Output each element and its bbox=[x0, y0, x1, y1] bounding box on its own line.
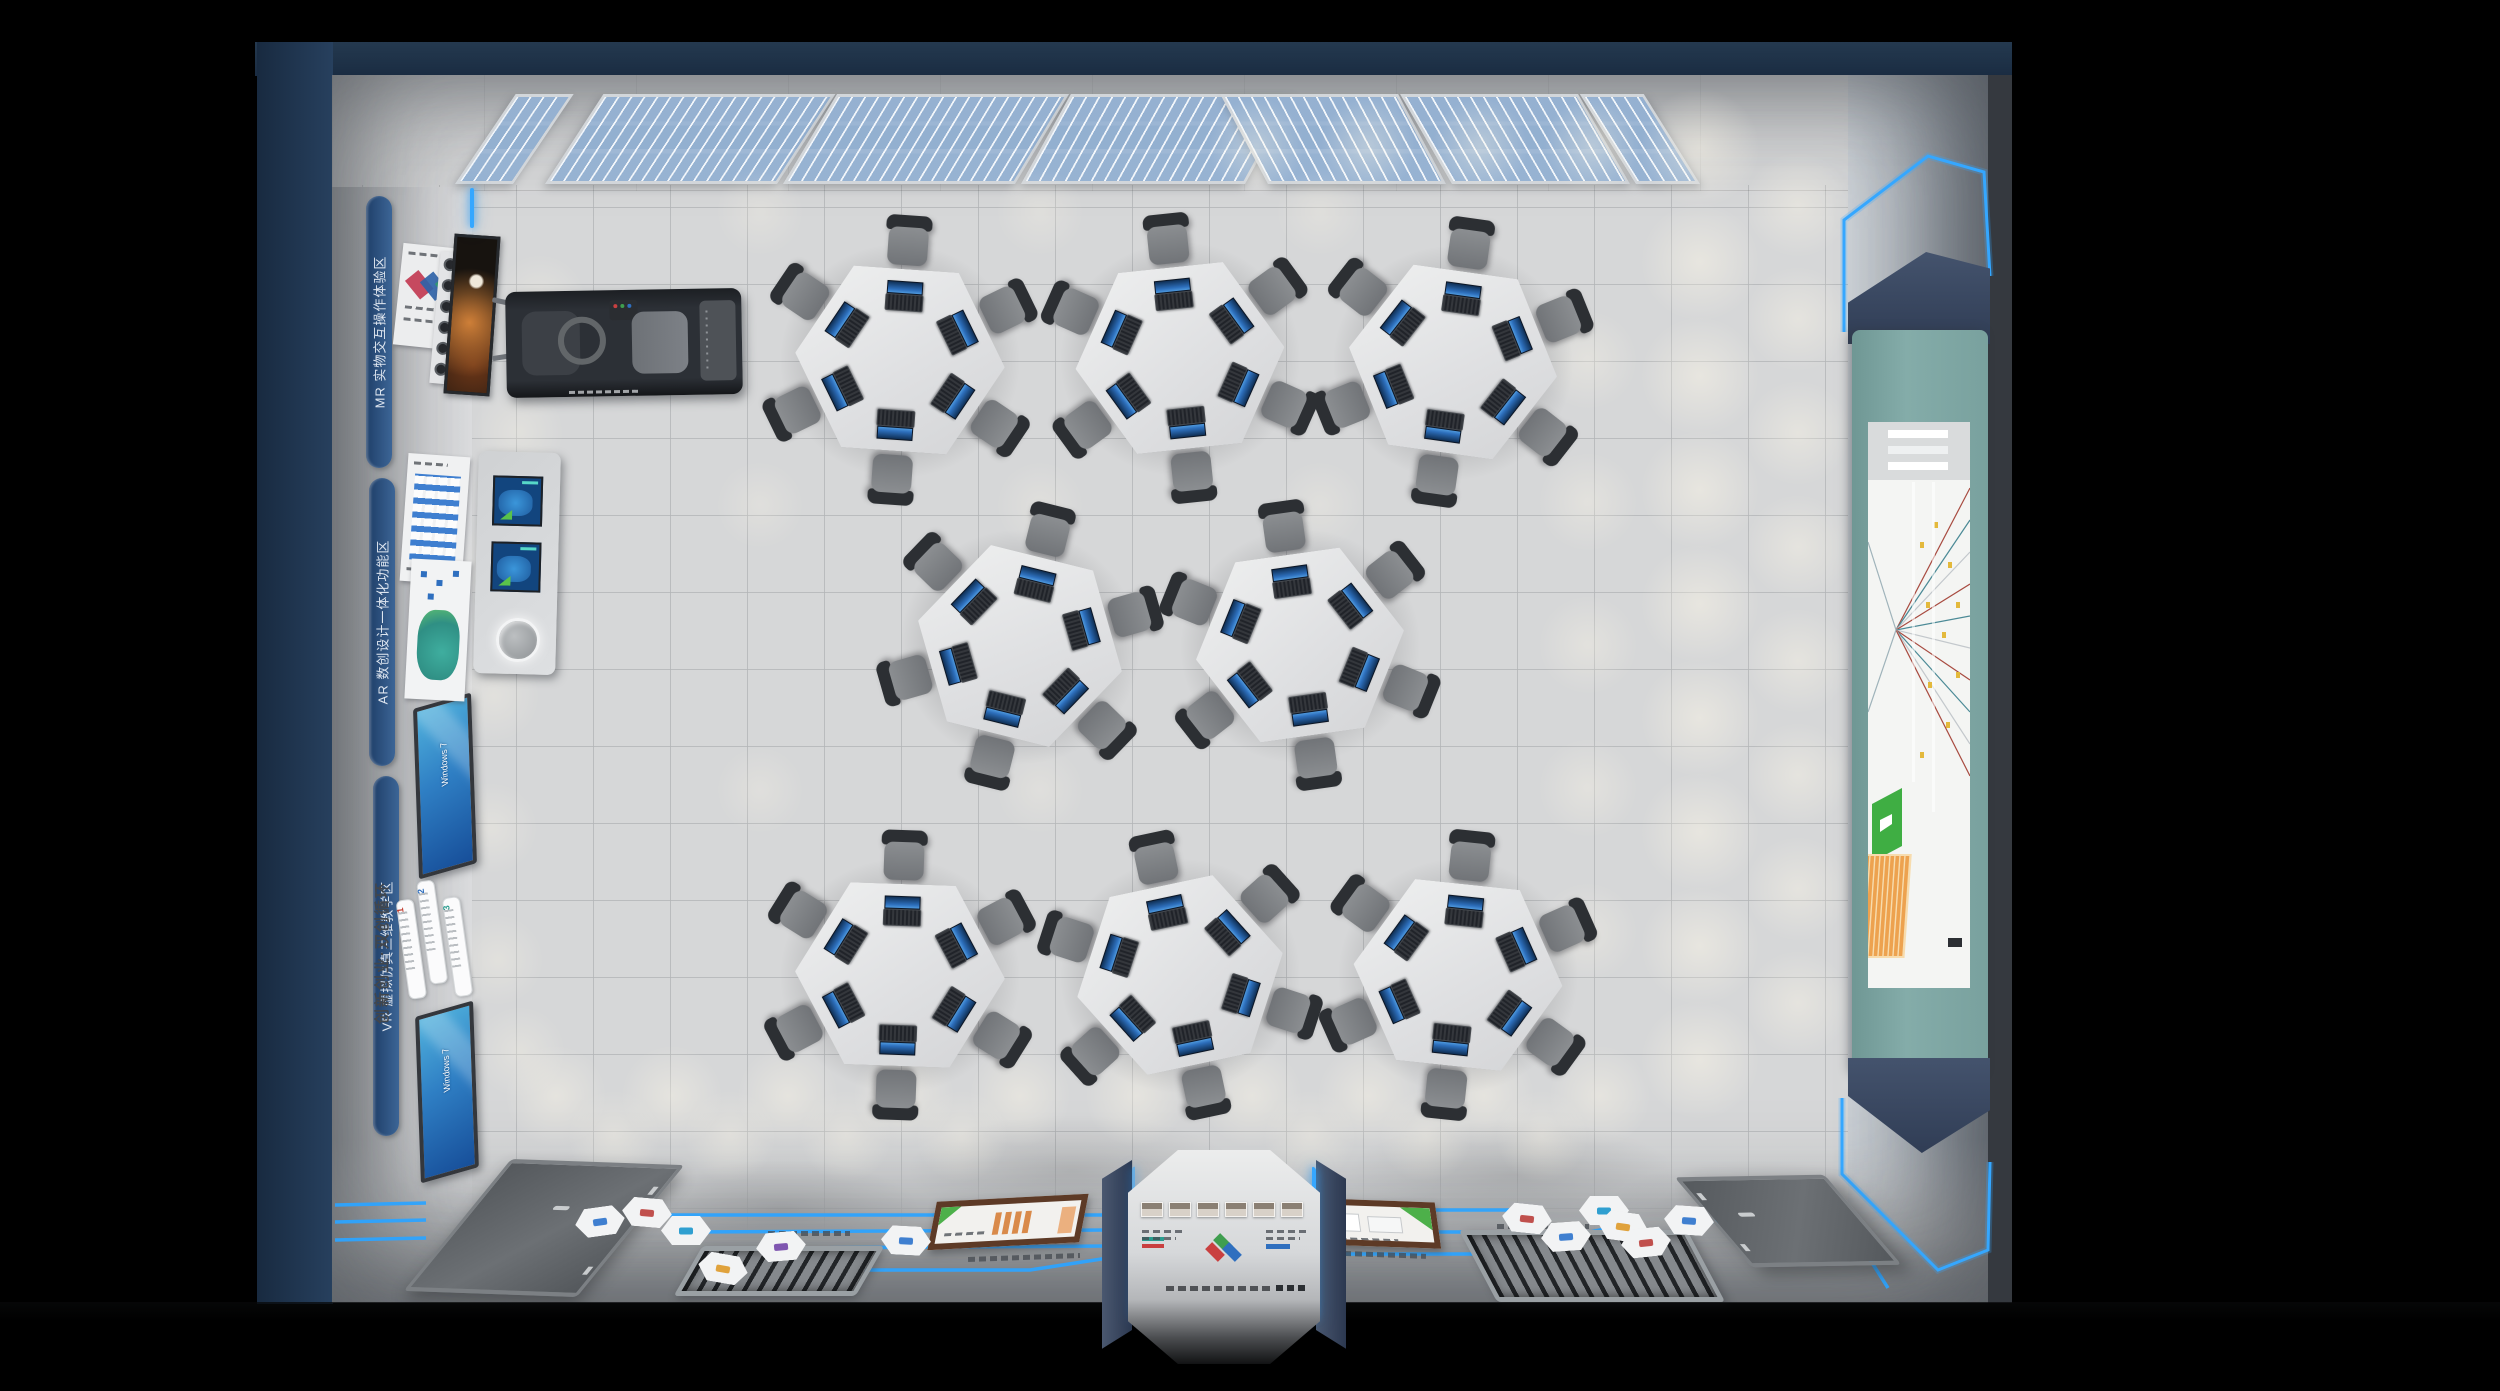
chair-seat bbox=[1415, 453, 1460, 496]
right-wall-big-screen bbox=[1852, 330, 1988, 1075]
laptop-keyboard bbox=[876, 409, 915, 429]
factory-visualization-content bbox=[1868, 422, 1970, 988]
pylon-text-right bbox=[1266, 1230, 1306, 1244]
office-chair bbox=[1140, 211, 1195, 270]
wall-title-block: 创新创业·双创循环 bbox=[362, 880, 388, 1020]
laptop bbox=[1423, 408, 1465, 444]
os-label: Windows 7 bbox=[440, 1047, 452, 1093]
office-chair bbox=[1418, 1063, 1473, 1122]
laptop bbox=[883, 895, 922, 927]
wall-title-text: 创新创业·双创循环 bbox=[371, 881, 392, 1024]
os-label: Windows 7 bbox=[438, 741, 450, 787]
laptop bbox=[884, 280, 924, 314]
laptop bbox=[1441, 281, 1483, 317]
glow-ring-stool bbox=[495, 617, 540, 662]
wall-monitor: Windows 7 bbox=[413, 693, 477, 880]
hex-workstation-table bbox=[881, 507, 1160, 786]
laptop bbox=[875, 408, 915, 442]
office-chair bbox=[1125, 828, 1185, 891]
wall-led-accent bbox=[470, 188, 474, 228]
hex-workstation-table bbox=[777, 237, 1022, 482]
office-chair bbox=[1441, 215, 1498, 275]
pylon-text-left bbox=[1142, 1230, 1182, 1244]
driving-simulator bbox=[505, 288, 743, 398]
outer-wall-top bbox=[255, 42, 2012, 76]
office-chair bbox=[1165, 446, 1220, 505]
hex-workstation-table bbox=[1332, 849, 1585, 1102]
zone-label: AR 数创设计一体化功能区 bbox=[373, 540, 392, 705]
chair-seat bbox=[1170, 450, 1214, 492]
laptop-keyboard bbox=[1444, 907, 1484, 928]
hex-workstation-table bbox=[1044, 839, 1317, 1112]
hex-workstation-table bbox=[781, 856, 1019, 1094]
chair-seat bbox=[1133, 841, 1180, 886]
laptop bbox=[1444, 894, 1485, 929]
diamond-logo-icon bbox=[1200, 1234, 1248, 1264]
laptop bbox=[1270, 564, 1312, 600]
office-chair bbox=[1174, 1059, 1234, 1122]
office-chair bbox=[865, 449, 919, 506]
pylon-face bbox=[1128, 1150, 1320, 1364]
laptop bbox=[1288, 691, 1330, 727]
office-chair bbox=[1288, 732, 1345, 792]
wall-monitor: Windows 7 bbox=[415, 1001, 479, 1184]
rendered-room-top-view: MR 实物交互操作体验区 AR 数创设计一体化功能区 VR 虚拟仿真三维教学区 bbox=[0, 0, 2500, 1391]
laptop-screen bbox=[876, 426, 913, 441]
control-cabinet bbox=[473, 451, 561, 675]
laptop-keyboard bbox=[883, 908, 922, 926]
laptop bbox=[878, 1023, 917, 1055]
hex-workstation-table bbox=[1054, 232, 1307, 485]
laptop-screen bbox=[879, 1041, 915, 1055]
chair-seat bbox=[1446, 228, 1491, 271]
chair-seat bbox=[1024, 512, 1072, 559]
chair-seat bbox=[1146, 224, 1190, 266]
chair-seat bbox=[1448, 841, 1492, 883]
zone-label: MR 实物交互操作体验区 bbox=[370, 256, 389, 409]
framed-poster-left bbox=[927, 1194, 1088, 1251]
office-chair bbox=[1408, 449, 1465, 509]
office-chair bbox=[1443, 828, 1498, 887]
hex-workstation-table bbox=[1323, 232, 1583, 492]
laptop-keyboard bbox=[884, 293, 923, 313]
office-chair bbox=[1255, 498, 1312, 558]
hex-workstation-table bbox=[1170, 515, 1430, 775]
laptop bbox=[1431, 1022, 1472, 1057]
zone-strip-segment: AR 数创设计一体化功能区 bbox=[369, 478, 395, 766]
laptop bbox=[1166, 405, 1207, 440]
chair-seat bbox=[1424, 1067, 1468, 1109]
office-chair bbox=[881, 214, 935, 271]
chair-seat bbox=[871, 453, 914, 494]
chair-seat bbox=[1293, 736, 1338, 779]
laptop-screen bbox=[884, 895, 920, 909]
chair-seat bbox=[875, 1069, 916, 1108]
entrance-pylon bbox=[1098, 1150, 1350, 1364]
chair-seat bbox=[883, 841, 924, 880]
laptop-keyboard bbox=[879, 1024, 918, 1042]
city-diagram-poster bbox=[404, 559, 471, 702]
office-chair bbox=[870, 1065, 922, 1121]
floor-vent-grill bbox=[1459, 1230, 1725, 1302]
zone-strip-segment: MR 实物交互操作体验区 bbox=[366, 196, 392, 468]
orange-data-table bbox=[1868, 854, 1912, 958]
outer-wall-left bbox=[257, 42, 333, 1304]
chair-seat bbox=[887, 226, 930, 267]
laptop bbox=[1153, 277, 1194, 312]
chair-seat bbox=[1262, 511, 1307, 554]
laptop-keyboard bbox=[1154, 290, 1194, 311]
office-chair bbox=[878, 829, 930, 885]
